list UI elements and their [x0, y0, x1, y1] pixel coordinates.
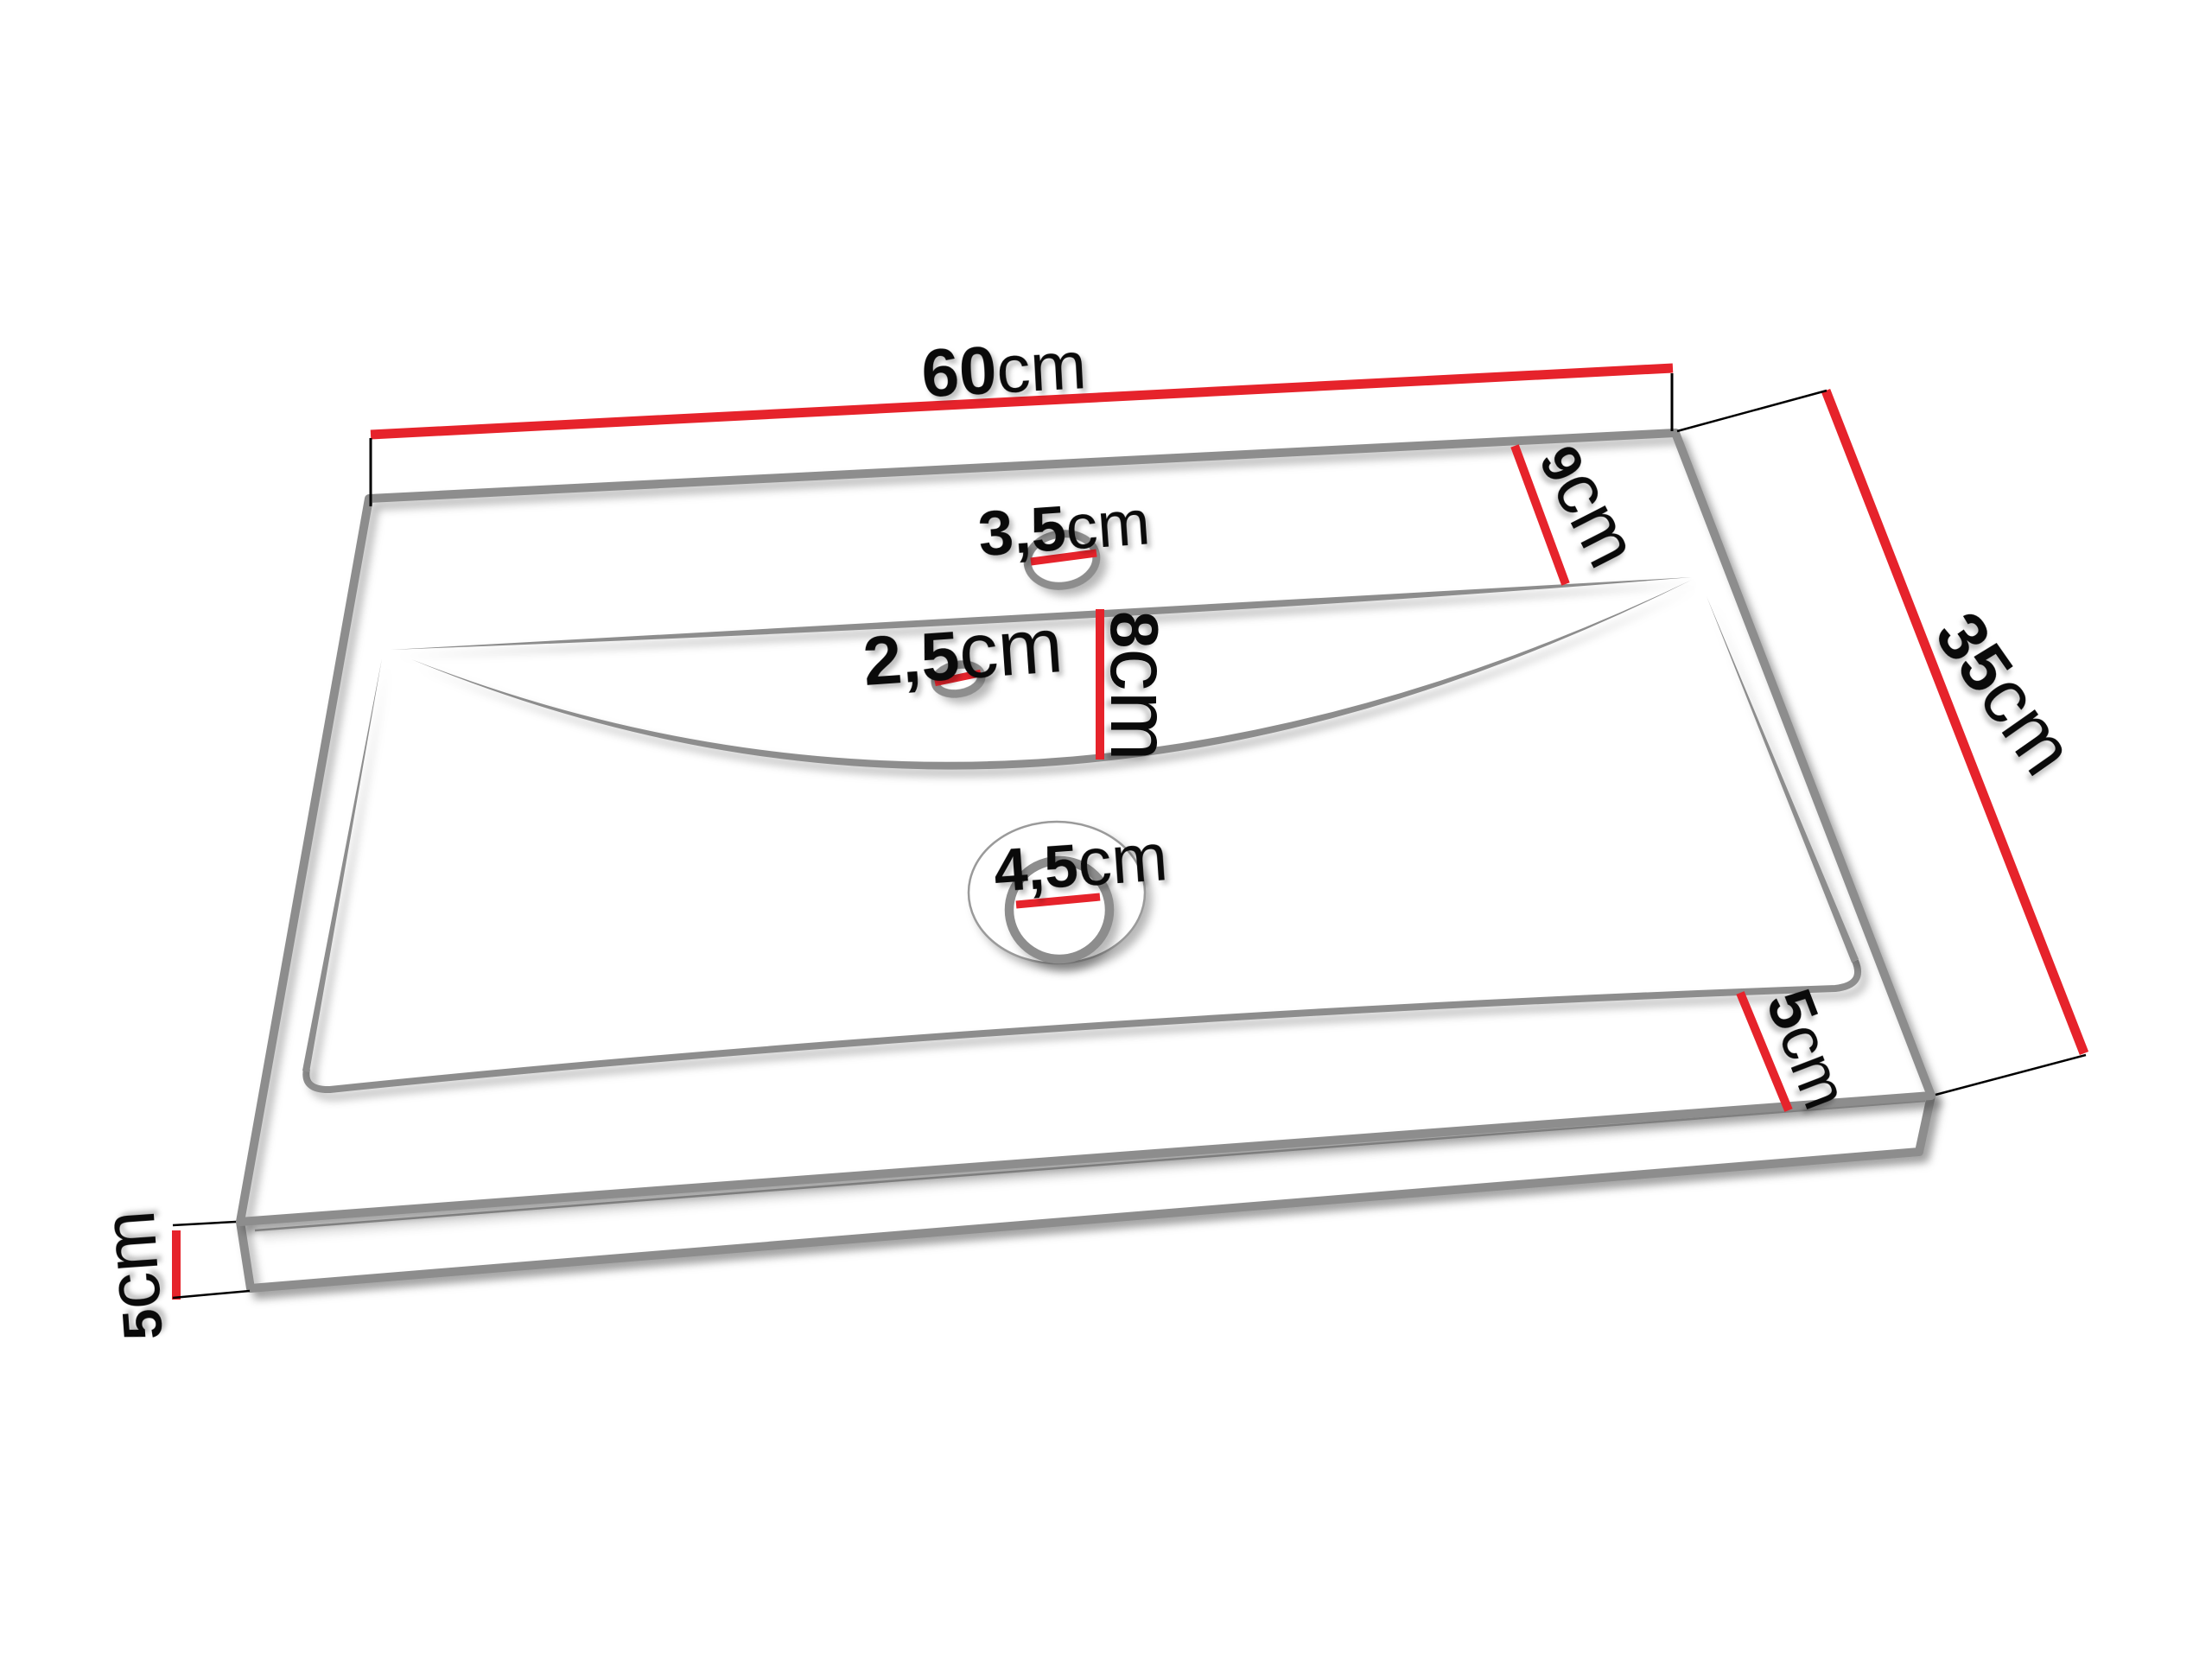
svg-text:3,5cm: 3,5cm: [976, 487, 1152, 569]
svg-text:60cm: 60cm: [919, 327, 1088, 411]
